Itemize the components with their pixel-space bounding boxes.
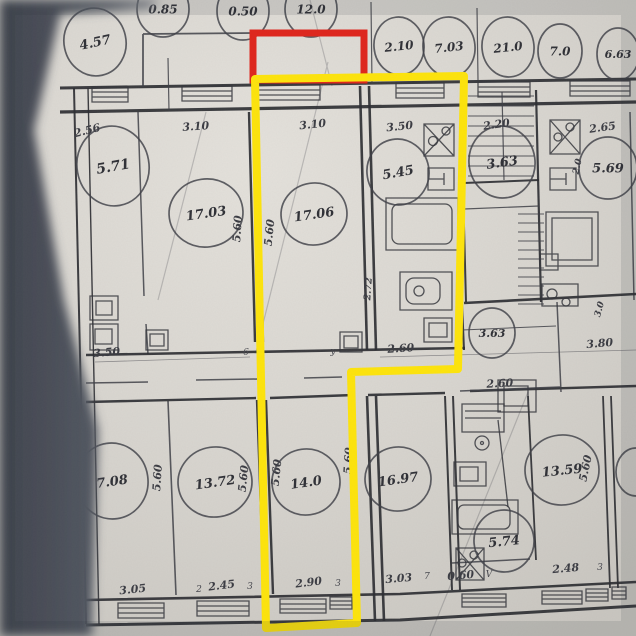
floorplan-svg: 2.563.103.103.502.202.655.605.602.722.03…	[0, 0, 636, 636]
film-grain	[0, 0, 636, 636]
floorplan-photo: 2.563.103.103.502.202.655.605.602.722.03…	[0, 0, 636, 636]
